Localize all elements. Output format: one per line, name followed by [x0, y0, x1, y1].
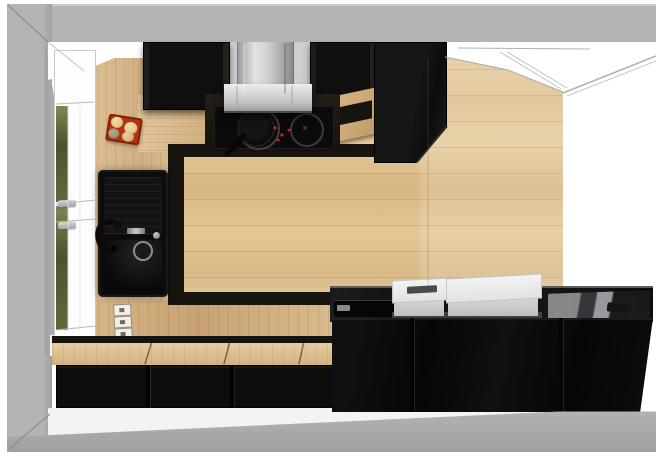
bread-roll	[108, 128, 120, 140]
cabinet-door-gap	[146, 365, 150, 408]
range-hood	[224, 84, 312, 113]
frying-pan	[237, 109, 275, 147]
sink-drainer	[104, 177, 162, 235]
inset-steel-part	[337, 305, 350, 311]
white-appliance	[446, 273, 542, 303]
small-dark-item	[606, 302, 629, 313]
island-cabinet-fronts	[332, 318, 653, 412]
burner-ring-right	[290, 113, 324, 147]
cabinet-door-gap	[230, 365, 234, 408]
kitchen-top-view-render	[0, 0, 656, 456]
bread-roll	[110, 116, 124, 129]
bench-cabinet-fronts	[56, 365, 334, 408]
cabinet-door-gap	[559, 318, 563, 412]
top-wall	[7, 4, 656, 43]
bench-wood-top	[52, 343, 334, 365]
window-foliage	[56, 106, 68, 202]
sink-drain	[133, 241, 153, 261]
window-handle	[58, 222, 76, 230]
sink-knob	[153, 232, 160, 239]
cabinet-door-gap	[410, 318, 414, 412]
sink-waste-lever	[127, 228, 145, 234]
window-handle	[58, 200, 76, 208]
socket	[114, 316, 133, 329]
counter-edge-band-left	[168, 144, 184, 305]
socket	[113, 304, 132, 317]
counter-edge-band-bottom	[168, 292, 334, 305]
bread-tray	[105, 114, 143, 146]
